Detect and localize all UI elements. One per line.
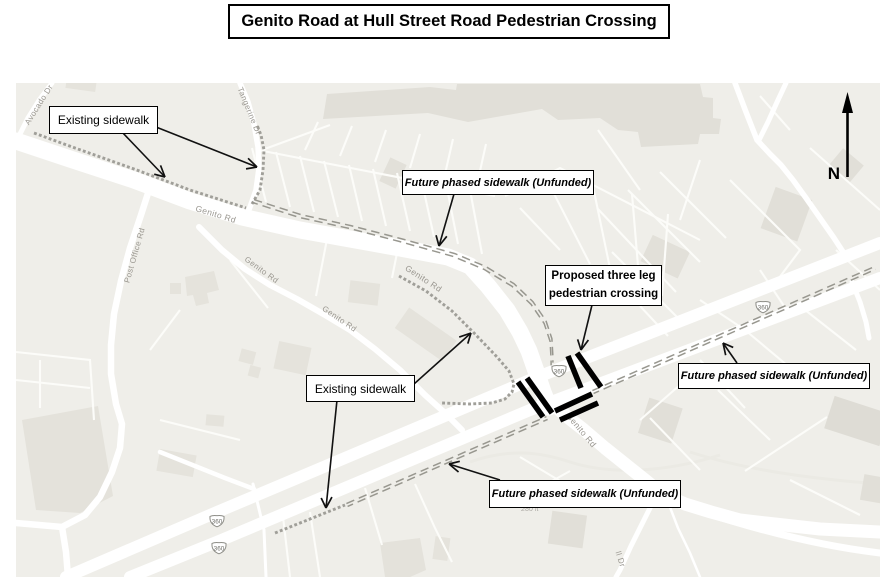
- svg-text:N: N: [828, 164, 840, 183]
